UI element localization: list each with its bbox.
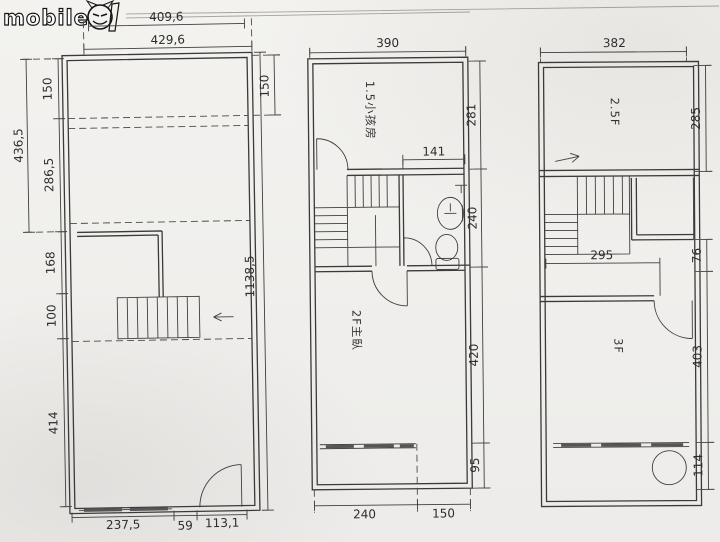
dim-label-150-bottom: 150 <box>432 506 455 520</box>
mobile01-logo: mobile <box>3 1 119 31</box>
dim-label-114: 114 <box>691 454 705 477</box>
dim-label-382: 382 <box>603 36 626 50</box>
door-arc-icon <box>654 300 692 338</box>
room-label-master-bedroom: 2F主臥 <box>349 310 363 351</box>
stairs-icon <box>544 176 630 255</box>
room-label-3f: 3F <box>611 338 625 354</box>
plan3-walls <box>538 61 701 506</box>
plan3-room-wall <box>539 169 699 176</box>
door-arc-icon <box>372 271 407 306</box>
dim-label-95: 95 <box>468 457 482 472</box>
direction-arrow-icon <box>555 153 579 162</box>
plan3-dimension-lines <box>540 51 708 490</box>
dim-label-285: 285 <box>689 107 703 130</box>
door-arc-icon <box>199 465 242 508</box>
faucet-icon <box>455 181 467 194</box>
stairs-icon <box>314 175 400 267</box>
logo-text: mobile <box>3 6 89 30</box>
dim-label-237-5: 237,5 <box>106 517 141 532</box>
dim-label-281: 281 <box>464 104 478 127</box>
plan2-dimension-lines <box>310 51 485 506</box>
dim-label-240-right: 240 <box>465 207 479 230</box>
dim-label-141: 141 <box>422 144 445 158</box>
direction-arrow-icon <box>213 313 233 321</box>
floorplan-drawing: mobile 409,6 429,6 436,5 <box>0 0 720 542</box>
dim-label-113-1: 113,1 <box>205 516 240 531</box>
scanned-floorplan-page: mobile 409,6 429,6 436,5 <box>0 0 720 542</box>
dim-label-240-bottom: 240 <box>353 507 376 521</box>
sink-icon <box>437 197 463 229</box>
plan1-dashed-lines <box>68 115 252 341</box>
dim-label-1138-5: 1138,5 <box>242 255 257 297</box>
plan2-walls <box>308 57 473 490</box>
dim-label-436-5: 436,5 <box>11 128 26 163</box>
plan2-bathroom-wall <box>399 175 404 266</box>
toilet-icon <box>436 234 459 269</box>
plan3-hall-wall <box>540 296 654 302</box>
dim-label-59: 59 <box>177 518 193 532</box>
dim-label-414: 414 <box>46 411 60 434</box>
floor-plan-2: 390 281 240 420 95 141 240 150 1.5小孩房 2F… <box>308 35 491 522</box>
dim-label-286-5: 286,5 <box>42 158 57 193</box>
dim-label-403: 403 <box>690 345 704 368</box>
dim-label-76: 76 <box>690 248 704 263</box>
dim-label-295: 295 <box>590 248 613 262</box>
dim-label-390: 390 <box>376 36 399 50</box>
plan2-window-glass <box>326 446 414 447</box>
room-label-2-5f: 2.5F <box>608 98 622 127</box>
dim-label-150-left: 150 <box>40 77 54 100</box>
washing-machine-icon <box>652 451 686 485</box>
room-label-kids-room: 1.5小孩房 <box>363 81 378 140</box>
dim-label-100: 100 <box>44 304 58 327</box>
plan1-walls <box>62 52 260 513</box>
plan1-interior-wall <box>77 231 163 298</box>
dim-label-429-6: 429,6 <box>150 33 185 48</box>
door-arc-icon <box>317 138 348 169</box>
door-arc-icon <box>404 238 432 266</box>
dim-label-168: 168 <box>43 251 57 274</box>
plan2-hall-wall <box>315 265 470 272</box>
plan3-inner-dimension <box>546 258 660 297</box>
dim-label-420: 420 <box>467 344 481 367</box>
logo-one-glyph <box>109 3 119 31</box>
dim-label-150-right: 150 <box>257 75 271 98</box>
floor-plan-3: 382 285 76 403 114 295 2.5F 3F <box>538 35 715 506</box>
stairs-icon <box>117 296 200 338</box>
plan2-room-wall <box>347 168 464 175</box>
plan3-window-glass <box>561 445 683 446</box>
paper-edge-line <box>126 6 719 18</box>
dim-label-409-6: 409,6 <box>149 10 184 25</box>
plan3-closet-wall <box>631 177 693 239</box>
floor-plan-1: 409,6 429,6 436,5 150 286,5 168 100 414 … <box>9 8 288 536</box>
